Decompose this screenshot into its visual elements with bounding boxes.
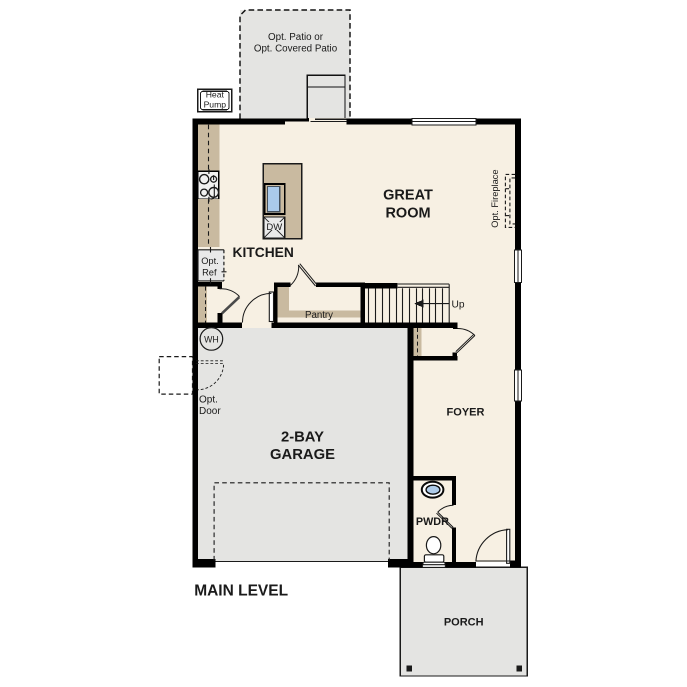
svg-text:Opt.: Opt. [199, 394, 218, 405]
svg-text:KITCHEN: KITCHEN [233, 245, 294, 260]
svg-text:Opt.: Opt. [201, 256, 219, 266]
svg-text:Ref: Ref [202, 268, 217, 278]
svg-text:FOYER: FOYER [447, 407, 485, 419]
svg-text:Door: Door [199, 406, 221, 417]
svg-text:WH: WH [204, 334, 219, 344]
svg-text:2-BAY: 2-BAY [281, 430, 324, 446]
svg-text:Opt. Fireplace: Opt. Fireplace [490, 169, 500, 227]
svg-text:Opt. Patio or: Opt. Patio or [268, 32, 324, 43]
svg-text:Heat: Heat [206, 90, 225, 100]
svg-text:Pump: Pump [204, 100, 227, 110]
svg-text:Up: Up [452, 299, 465, 310]
svg-text:MAIN LEVEL: MAIN LEVEL [194, 582, 288, 599]
svg-text:PORCH: PORCH [444, 616, 484, 628]
svg-text:DW: DW [266, 222, 282, 233]
svg-text:ROOM: ROOM [385, 206, 430, 222]
svg-text:GARAGE: GARAGE [270, 447, 335, 463]
svg-text:GREAT: GREAT [383, 188, 433, 204]
svg-text:PWDR: PWDR [416, 516, 449, 528]
svg-text:Pantry: Pantry [305, 310, 333, 321]
svg-text:Opt. Covered Patio: Opt. Covered Patio [254, 43, 338, 54]
